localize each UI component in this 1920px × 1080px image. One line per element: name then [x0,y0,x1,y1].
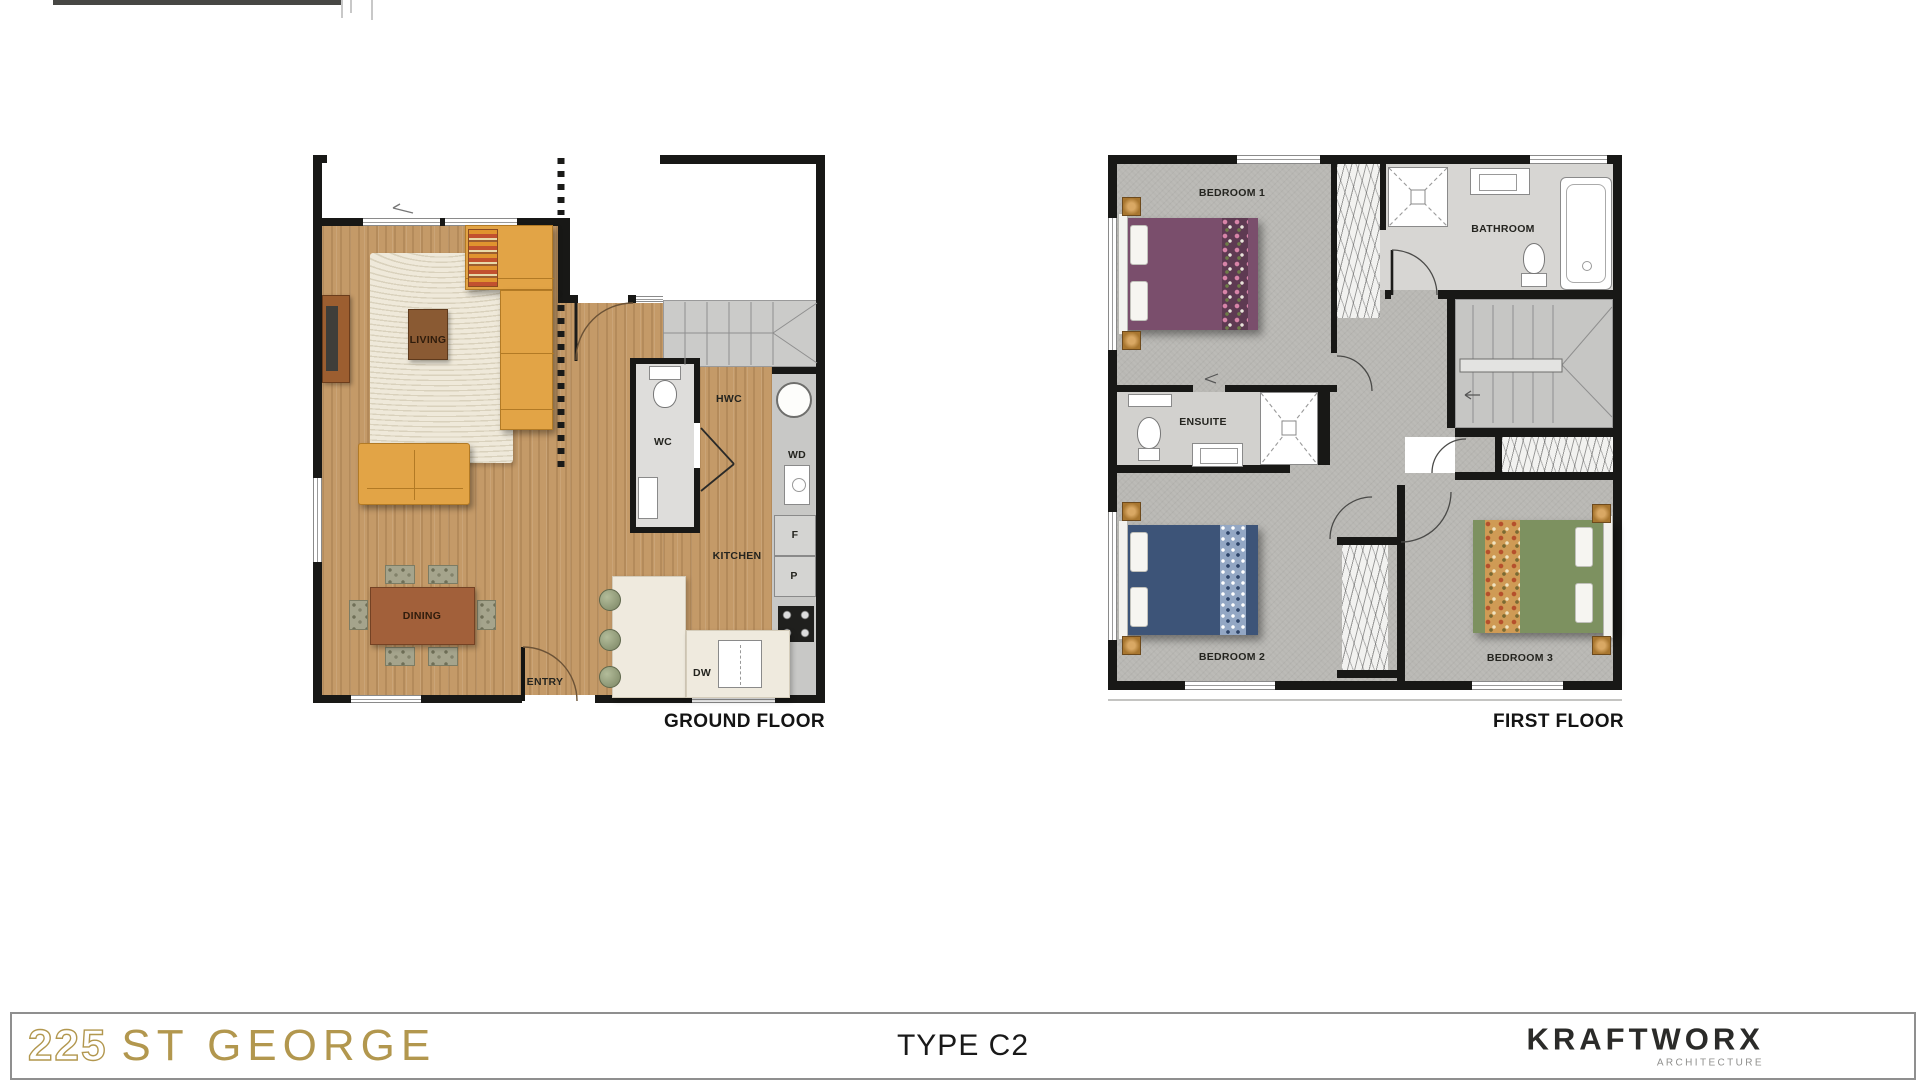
top-cropped-bar [53,0,343,5]
brand-name: KRAFTWORX [1527,1024,1764,1055]
brand-logo: KRAFTWORX ARCHITECTURE [1527,1024,1764,1069]
ground-annotations [313,155,825,745]
ground-floor-caption: GROUND FLOOR [664,711,825,733]
top-crop-line [350,0,352,13]
first-floor-caption: FIRST FLOOR [1493,711,1624,733]
brand-tagline: ARCHITECTURE [1527,1058,1764,1069]
sheet: LIVING DINING WC HWC WD F P KITCH [0,0,1920,1080]
first-annotations [1108,155,1624,745]
ground-floor-plan: LIVING DINING WC HWC WD F P KITCH [313,155,825,745]
top-crop-line [371,0,373,20]
top-crop-line [341,0,343,18]
title-block: 225ST GEORGE TYPE C2 KRAFTWORX ARCHITECT… [10,1012,1916,1080]
first-floor-plan: BEDROOM 1 BATHROOM ENSUITE BEDROOM [1108,155,1624,745]
